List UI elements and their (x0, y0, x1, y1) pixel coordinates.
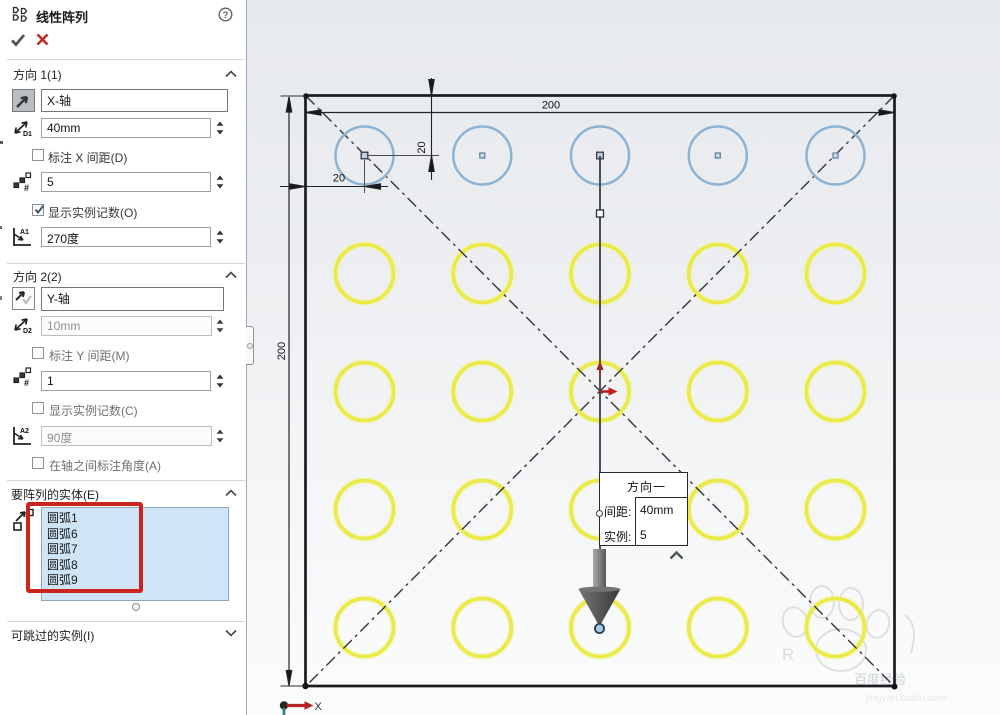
svg-text:#: # (24, 378, 29, 388)
svg-text:D2: D2 (23, 328, 32, 335)
svg-text:X: X (315, 701, 323, 713)
svg-text:A1: A1 (20, 229, 29, 236)
svg-text:R: R (782, 645, 794, 664)
svg-text:A2: A2 (20, 428, 29, 435)
svg-text:200: 200 (542, 100, 560, 112)
svg-text:20: 20 (416, 141, 428, 153)
svg-text:200: 200 (276, 342, 288, 360)
svg-text:D1: D1 (23, 131, 32, 138)
svg-text:#: # (24, 183, 29, 193)
svg-text:jingyan.baidu.com: jingyan.baidu.com (865, 693, 947, 704)
svg-text:20: 20 (333, 173, 345, 185)
svg-text:?: ? (223, 10, 229, 21)
